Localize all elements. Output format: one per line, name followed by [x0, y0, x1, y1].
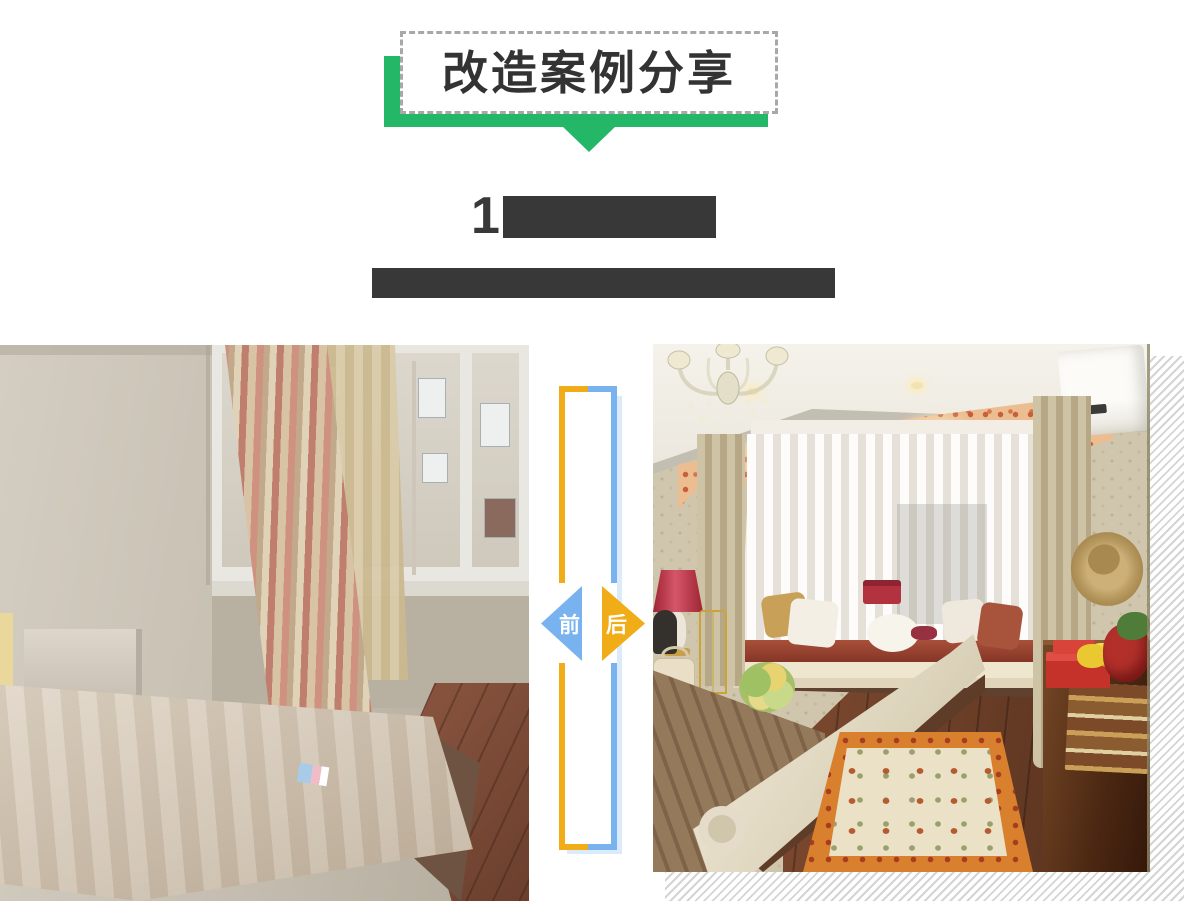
footboard-scroll	[699, 806, 745, 852]
banner-pointer-triangle	[561, 125, 617, 152]
gold-stand	[699, 610, 727, 694]
divider-border	[588, 844, 617, 850]
white-pillow	[787, 598, 840, 649]
before-label: 前	[559, 609, 580, 639]
maroon-pillow	[976, 601, 1024, 650]
before-photo	[0, 345, 529, 901]
after-photo	[653, 344, 1150, 872]
divider-border	[611, 392, 617, 583]
window-mullion	[460, 345, 472, 583]
page: 改造案例分享 1	[0, 0, 1184, 901]
red-suitcase	[863, 580, 901, 604]
case-title-visible-text: 1	[471, 196, 500, 238]
case-title-redacted-block	[503, 196, 716, 238]
book-stack	[1065, 682, 1150, 774]
hat-crown	[1084, 540, 1124, 578]
divider-border	[559, 392, 565, 583]
flower-bouquet	[739, 662, 795, 712]
banner-title: 改造案例分享	[442, 50, 736, 96]
rose-decor	[911, 626, 937, 640]
after-label: 后	[606, 609, 627, 639]
case-title: 1	[471, 196, 716, 238]
after-arrow-badge: 后	[602, 586, 645, 661]
building-window	[484, 498, 516, 538]
downlight	[911, 382, 923, 389]
building-edge	[412, 361, 416, 575]
red-lamp-shade	[653, 570, 703, 612]
banner-dashed-box: 改造案例分享	[400, 31, 778, 114]
building-window	[480, 403, 510, 447]
wall-corner	[206, 345, 210, 585]
photo-edge-line	[1147, 344, 1150, 872]
divider-border	[559, 844, 588, 850]
rug-center	[829, 748, 1007, 856]
green-plant	[1117, 612, 1150, 640]
divider-border	[611, 663, 617, 844]
building-window	[418, 378, 446, 418]
case-subtitle-redacted-block	[372, 268, 835, 298]
ornate-rug	[803, 732, 1033, 872]
divider-border	[559, 663, 565, 844]
building-window	[422, 453, 448, 483]
